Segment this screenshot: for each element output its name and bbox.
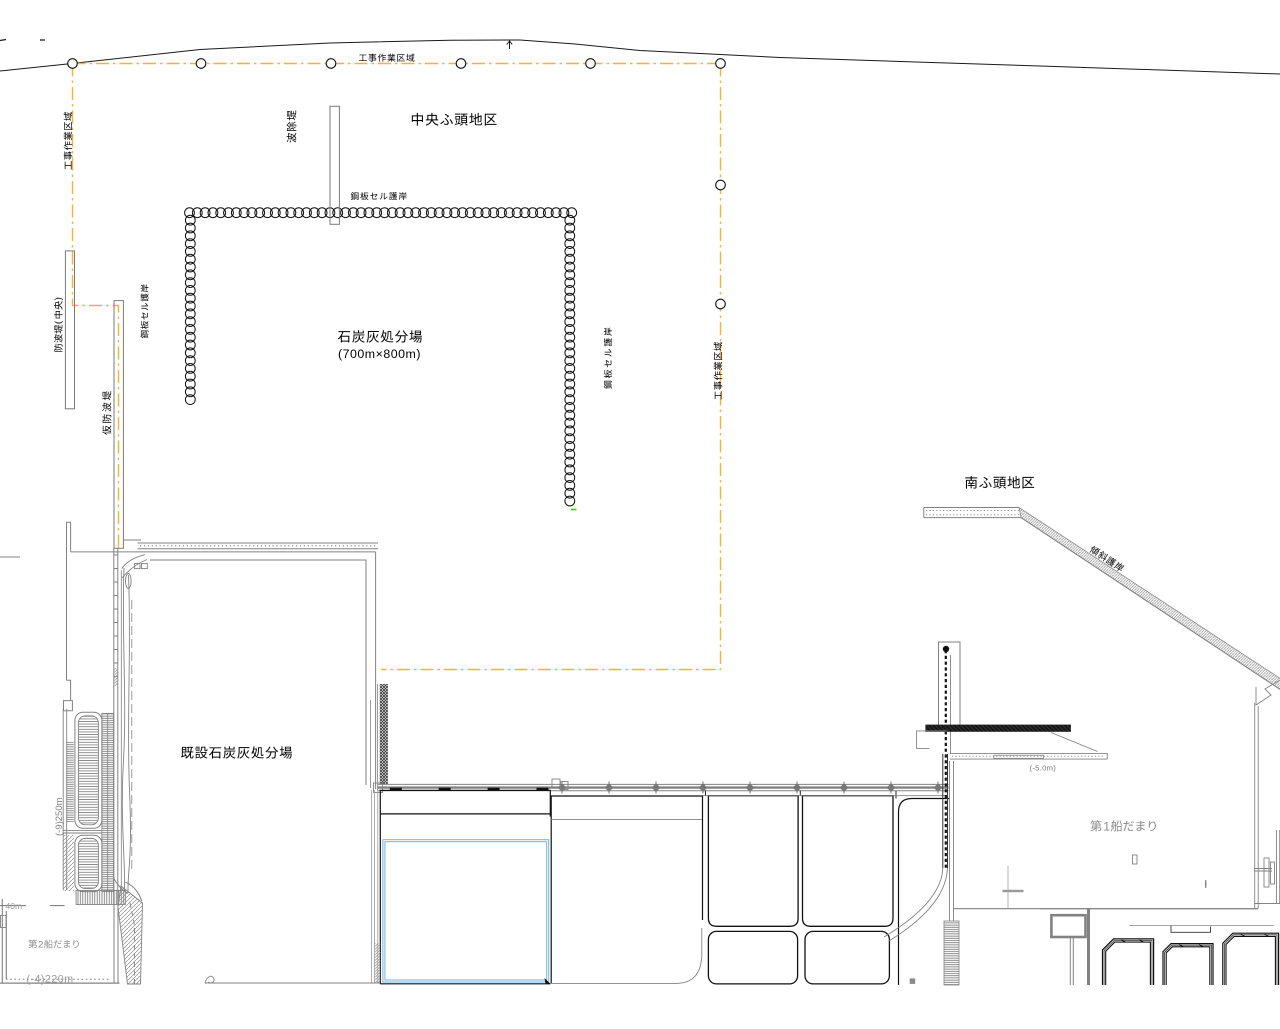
svg-text:2: 2 [38, 939, 43, 950]
svg-text:): ) [53, 297, 64, 300]
svg-text:(700m×800m): (700m×800m) [338, 347, 421, 361]
svg-text:1: 1 [1103, 820, 1110, 834]
svg-text:(-4)220m: (-4)220m [27, 974, 74, 986]
svg-text:(-9)250m: (-9)250m [54, 797, 65, 836]
svg-text:(-5.0m): (-5.0m) [1030, 764, 1057, 773]
svg-text:40m: 40m [6, 901, 23, 911]
